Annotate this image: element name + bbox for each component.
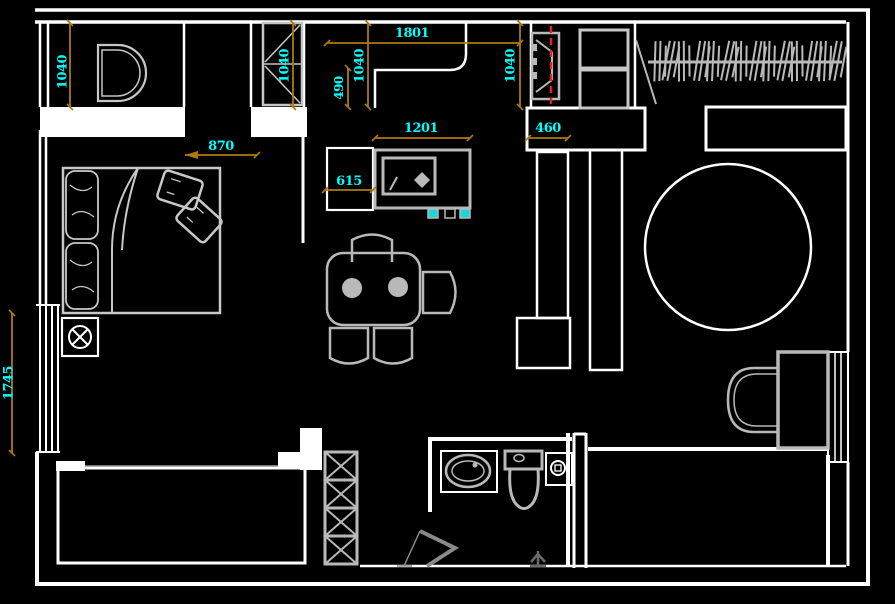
drain-circle [551,461,565,475]
pillow-crease [70,185,94,217]
wall-band [706,107,846,150]
toilet-bowl [510,469,539,509]
hatch-x [325,452,357,480]
blanket-fold [112,168,138,313]
tv-outline [532,33,559,99]
dim-label-counter-length: 1801 [395,26,429,41]
unit-key [445,209,455,218]
basin-inner [102,50,140,96]
tv-back-detail [533,58,537,65]
wall-segment [40,130,46,305]
window-left [36,305,60,452]
entry-drain-glyph [530,551,546,566]
chair-icon [352,235,392,263]
wall-segment [588,449,828,566]
faucet-dot [473,463,478,468]
vanity-basin-icon [728,352,828,448]
hatch-x [325,536,357,564]
dim-label-kitchen-cabinet: 1040 [353,48,368,83]
basin-inner [734,374,778,426]
basin-outer [728,368,778,432]
vanity-outline [778,352,828,448]
unit-key [428,209,438,218]
door-trace [397,531,420,566]
bathroom-sink-icon [441,451,497,492]
balcony [58,466,305,563]
dim-arrow [185,151,198,159]
tv-back-detail [533,72,537,79]
cushion-crease [167,179,181,195]
partition-cabinet [517,318,570,368]
wall-segment [251,22,635,107]
dim-label-bed-clearance: 870 [208,139,234,154]
hatch-x [325,508,357,536]
dim-label-tv-wall: 1040 [504,48,519,83]
window-glazing [835,352,841,462]
sink-bowl-inner [452,461,484,481]
window-right [828,352,848,462]
basin-outer [98,45,146,101]
dim-label-fridge: 615 [336,174,362,189]
cushion-outline [156,170,203,211]
pillow-icon [66,243,98,309]
shower-door-icon [397,531,455,566]
dim-label-entry-closet: 1040 [56,54,71,89]
walls [35,10,870,584]
media-unit-icon [375,150,470,218]
cushion-icon [156,170,203,211]
storage-cabinet-icon [580,30,628,108]
toilet-icon [505,451,542,509]
window-frame [828,352,848,462]
dim-label-counter-depth: 490 [332,76,346,100]
chair-icon [330,328,368,364]
dimension-lines [12,23,568,453]
dim-label-media-cabinet: 1201 [404,121,438,136]
floorplan-canvas[interactable]: 1040 1040 490 1040 1801 1040 460 1201 61… [0,0,895,604]
lamp-cross [72,329,88,345]
bed-icon [63,168,223,313]
lattice-column-icon [325,452,357,564]
floorplan-viewport: 1040 1040 490 1040 1801 1040 460 1201 61… [0,0,895,604]
dim-label-hall-cabinet: 1040 [278,48,293,83]
unit-diamond [414,172,430,188]
hanger-icon [705,41,721,82]
chair-icon [374,328,412,364]
wall-segment [574,433,586,568]
dim-label-partition: 460 [535,121,561,136]
partition-cabinet [537,152,568,318]
wall-segment [35,10,870,22]
round-rug-icon [645,164,811,330]
unit-key [460,209,470,218]
plate-icon [342,278,362,298]
pillow-icon [66,171,98,239]
door-leaf [420,531,455,566]
washbasin-icon [98,45,146,101]
nightstand-icon [62,318,98,356]
hatch-x [325,480,357,508]
tv-back-detail [533,44,537,51]
wall-block [278,452,307,469]
plate-icon [388,277,408,297]
partition-cabinet [590,150,622,370]
door-swing-icon [636,40,656,104]
hanger-icon [761,41,778,82]
cushion-icon [175,196,223,244]
unit-pointer [390,177,397,190]
tv-screen [536,40,552,92]
clothes-rail-hangers-icon [636,40,847,104]
wall-block [251,107,307,137]
chair-icon [423,272,456,313]
tv-icon [532,33,559,99]
dim-label-bay-window: 1745 [2,365,17,400]
dimension-labels: 1040 1040 490 1040 1801 1040 460 1201 61… [2,26,562,400]
tank-button [514,455,524,462]
dining-table-icon [327,235,456,364]
wall-block [40,107,185,137]
drain-square [555,465,561,471]
balcony-outline [58,468,305,563]
pillow-crease [70,260,94,292]
cushion-outline [175,196,223,244]
wall-segment [40,22,48,107]
